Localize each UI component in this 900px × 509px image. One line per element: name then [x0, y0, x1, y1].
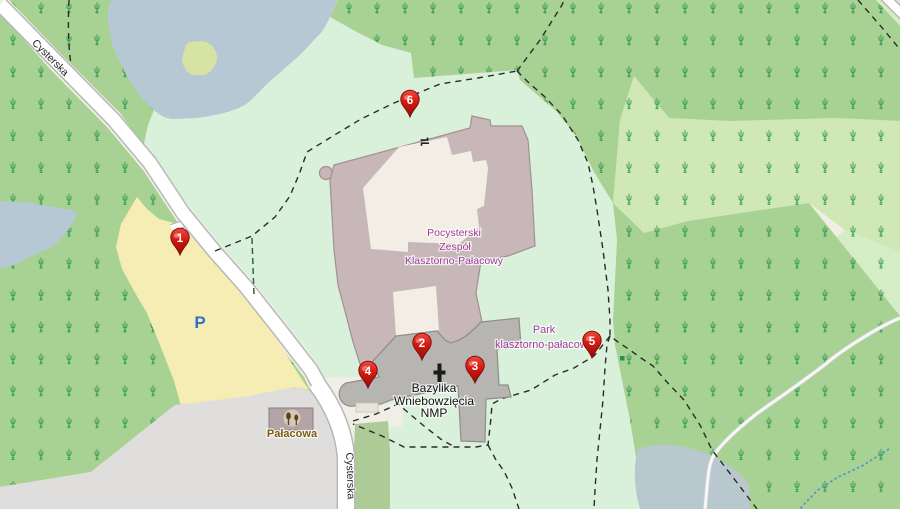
svg-text:Bazylika: Bazylika [412, 381, 457, 395]
svg-text:6: 6 [407, 95, 413, 107]
svg-text:2: 2 [419, 338, 425, 350]
svg-text:1: 1 [177, 233, 184, 245]
svg-text:Cysterska: Cysterska [343, 452, 357, 499]
svg-text:Zespół: Zespół [439, 241, 471, 253]
svg-text:4: 4 [365, 366, 372, 378]
svg-text:klasztorno-pałacowy: klasztorno-pałacowy [495, 339, 593, 351]
svg-text:Pałacowa: Pałacowa [267, 428, 318, 440]
svg-text:3: 3 [472, 361, 478, 373]
svg-text:Klasztorno-Pałacowy: Klasztorno-Pałacowy [405, 255, 504, 267]
svg-text:5: 5 [589, 336, 596, 348]
svg-text:Pocysterski: Pocysterski [427, 227, 481, 239]
svg-text:P: P [194, 313, 205, 332]
svg-text:Park: Park [533, 324, 556, 336]
svg-text:NMP: NMP [421, 406, 448, 420]
